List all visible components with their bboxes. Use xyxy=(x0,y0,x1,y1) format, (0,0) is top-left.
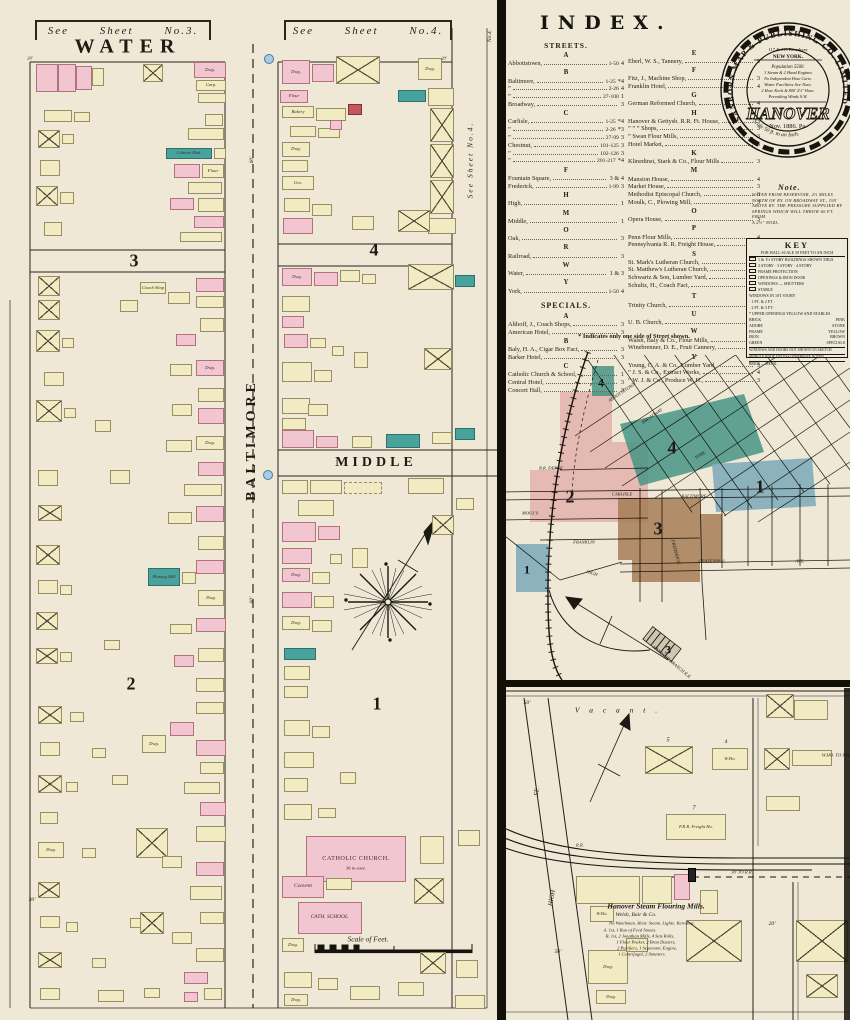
building-label: Dwg. xyxy=(205,366,215,371)
building-dwg: Dwg. xyxy=(282,568,310,582)
index-cell: Young, C. A. & Co., Lumber Yard, xyxy=(628,362,716,370)
building xyxy=(432,515,454,535)
building xyxy=(282,160,308,172)
index-cell xyxy=(553,179,606,180)
building xyxy=(120,300,138,312)
map-label-7: 7 xyxy=(692,805,695,812)
index-cell: Mansion House, xyxy=(628,176,669,184)
index-cell xyxy=(513,89,607,90)
building xyxy=(168,292,190,304)
building xyxy=(282,480,308,494)
index-cell xyxy=(537,105,617,106)
map-label-50: 50' xyxy=(555,949,562,955)
index-cell xyxy=(573,325,616,326)
building xyxy=(314,272,338,286)
building-label: Dwg. xyxy=(205,441,215,446)
building xyxy=(76,66,92,90)
index-cell: 1 xyxy=(621,371,624,379)
index-group-letter: S xyxy=(628,251,760,259)
specials-heading: SPECIALS. xyxy=(508,301,624,311)
map-label-50: 50' xyxy=(524,700,531,706)
building xyxy=(38,775,62,793)
building xyxy=(332,346,344,356)
building xyxy=(38,505,62,521)
building xyxy=(60,192,74,204)
building xyxy=(340,772,356,784)
building xyxy=(136,828,168,858)
building xyxy=(764,748,790,770)
building xyxy=(352,548,368,568)
building xyxy=(340,270,360,282)
index-cell: Catholic Church & School, xyxy=(508,371,577,379)
building xyxy=(282,296,310,312)
building xyxy=(38,300,60,320)
index-row: Opera House,3 xyxy=(628,216,760,224)
index-cell: 201-217 xyxy=(597,158,616,165)
building-cath-school: CATH. SCHOOL. xyxy=(298,902,362,934)
building xyxy=(282,592,312,608)
index-cell: ” W. J. & Co., Produce W. H., xyxy=(628,377,703,385)
building-label: Carp. xyxy=(206,83,217,88)
building xyxy=(455,428,475,440)
building xyxy=(196,278,224,292)
building xyxy=(190,886,222,900)
index-group-letter: O xyxy=(508,227,624,235)
building xyxy=(40,160,60,176)
building-label: CATH. SCHOOL. xyxy=(311,915,350,921)
index-cell xyxy=(533,257,617,258)
building xyxy=(198,198,224,212)
building-w-ho: W.Ho. xyxy=(712,748,748,770)
index-cell: Winebrenner, D. E., Fruit Cannery, xyxy=(628,344,716,352)
building xyxy=(298,500,334,516)
index-cell: 4 xyxy=(757,369,760,377)
building-label: Dwg. xyxy=(205,68,215,73)
index-cell: 4 xyxy=(621,288,624,296)
key-footer-line: SHINGLE ROOF UNLESS OTHERWISE NOTED xyxy=(749,354,845,360)
building xyxy=(283,218,313,234)
index-cell xyxy=(546,383,617,384)
building xyxy=(176,334,196,346)
index-cell: Moulk, C., Plowing Mill, xyxy=(628,199,692,207)
building-dwg: Dwg. xyxy=(284,994,308,1006)
index-cell xyxy=(669,306,753,307)
index-cell: Opera House, xyxy=(628,216,663,224)
building xyxy=(170,198,194,210)
building xyxy=(806,974,838,998)
key-color-name: SPECIALS xyxy=(827,340,845,346)
map-label-1-flour-packer-2-bran-dusters: 1 Flour Packer, 2 Bran Dusters, xyxy=(616,940,675,945)
index-cell: 3 xyxy=(621,134,624,142)
building xyxy=(188,182,222,194)
map-label-36-to-eave: 36 to eave. xyxy=(346,866,366,871)
index-group-letter: O xyxy=(628,208,760,216)
building xyxy=(64,408,76,418)
map-label-5: 5 xyxy=(666,737,669,744)
index-row: Young, C. A. & Co., Lumber Yard,3 xyxy=(628,362,760,370)
index-group-letter: R xyxy=(508,244,624,252)
building xyxy=(290,126,316,137)
index-cell xyxy=(524,292,607,293)
index-group-letter: C xyxy=(508,110,624,118)
index-row: Althoff, J., Coach Shops,3 xyxy=(508,321,624,329)
building xyxy=(398,982,424,996)
index-cell: 3 xyxy=(621,387,624,395)
index-group-letter: M xyxy=(628,167,760,175)
index-cell: 102-126 xyxy=(600,151,619,158)
stamp-city-name: HANOVER xyxy=(745,104,829,123)
building xyxy=(170,722,194,736)
index-cell: 3 & 4 xyxy=(610,175,624,183)
map-label-2: 2 xyxy=(127,674,136,695)
index-cell xyxy=(705,381,753,382)
building xyxy=(766,796,800,811)
index-row: Broadway,3 xyxy=(508,101,624,109)
index-group-letter: M xyxy=(508,210,624,218)
index-cell: 3 xyxy=(621,253,624,261)
index-cell: Baltimore, xyxy=(508,78,535,86)
building xyxy=(354,352,368,368)
index-cell xyxy=(513,97,601,98)
building-dwg: Dwg. xyxy=(38,842,64,858)
building xyxy=(38,276,60,296)
building xyxy=(455,995,485,1009)
building xyxy=(36,648,58,664)
index-cell: ” J. S. & Co., Extract Works, xyxy=(628,369,701,377)
building xyxy=(144,988,160,998)
index-cell xyxy=(665,220,753,221)
key-title: KEY xyxy=(749,240,845,250)
map-label-60: 60' xyxy=(249,597,255,604)
index-cell: Klinedinst, Stark & Co., Flour Mills xyxy=(628,158,719,166)
building-label: Dwg. xyxy=(291,147,301,152)
building-label: Dwg. xyxy=(291,621,301,626)
index-cell: Penn Flour Mills, xyxy=(628,234,672,242)
map-label-30-to-r-r: 30' TO R.R. xyxy=(731,870,753,875)
index-row: Middle,1 xyxy=(508,218,624,226)
building-label: Bakery xyxy=(291,110,304,115)
index-row: ”201-217*4 xyxy=(508,157,624,165)
index-cell xyxy=(665,323,753,324)
index-row: Barker Hotel,3 xyxy=(508,354,624,362)
index-row: Central Hotel,3 xyxy=(508,379,624,387)
sanborn-map-page: See Sheet No.3. See Sheet No.4. Dwg.Carp… xyxy=(0,0,850,1020)
index-cell: Carlisle, xyxy=(508,118,529,126)
building xyxy=(44,222,62,236)
building xyxy=(214,148,226,159)
map-label-ave: AVE. xyxy=(795,559,804,564)
map-label-r-r-depot: R.R. DEPOT xyxy=(539,466,563,471)
building xyxy=(92,958,106,968)
index-cell: 101-125 xyxy=(600,143,619,150)
index-row: ”27-1001 xyxy=(508,93,624,101)
index-cell: Chestnut, xyxy=(508,142,532,150)
building-label: Dwg. xyxy=(46,848,56,853)
index-cell xyxy=(544,391,617,392)
index-row: Railroad,3 xyxy=(508,253,624,261)
building xyxy=(310,480,342,494)
building xyxy=(140,912,164,934)
building xyxy=(200,912,224,924)
sanborn-publisher-stamp: SANBORN MAP & PUBLISHING CO. LIMITED Sca… xyxy=(718,20,850,160)
building xyxy=(330,554,342,564)
index-cell: Abbottstown, xyxy=(508,60,542,68)
index-group-letter: C xyxy=(508,363,624,371)
index-cell: Oak, xyxy=(508,235,520,243)
building xyxy=(456,960,478,978)
water-note: Note. WATER FROM RESERVOIR, 2½ MILESNORT… xyxy=(752,183,848,225)
building xyxy=(188,128,224,140)
building-flour: Flour xyxy=(280,90,308,103)
index-cell: St. Mark's Lutheran Church, xyxy=(628,259,700,267)
index-cell: 1 xyxy=(621,218,624,226)
building xyxy=(398,90,426,102)
streets-heading: STREETS. xyxy=(508,41,624,50)
building xyxy=(168,512,192,524)
stamp-line: 2 Hose Reels & 800' 2½" Hose. xyxy=(761,88,814,93)
building xyxy=(312,204,332,216)
index-cell: ” xyxy=(508,85,511,93)
building xyxy=(196,506,224,522)
building xyxy=(362,274,376,284)
index-row: ”102-1263 xyxy=(508,150,624,158)
index-row: St. Mark's Lutheran Church,2 xyxy=(628,259,760,267)
index-cell: ” xyxy=(508,93,511,101)
building xyxy=(330,120,342,130)
building xyxy=(576,876,640,904)
building xyxy=(408,478,444,494)
building xyxy=(352,216,374,230)
index-group-letter: Y xyxy=(508,279,624,287)
building xyxy=(263,470,273,480)
index-cell: 3 xyxy=(621,354,624,362)
index-cell: Fitz, J., Machine Shop, xyxy=(628,75,686,83)
index-row: Schwartz & Son, Lumber Yard,3 xyxy=(628,274,760,282)
index-cell: ” xyxy=(508,126,511,134)
building xyxy=(198,648,224,662)
building xyxy=(196,678,224,692)
index-group-letter: H xyxy=(508,192,624,200)
map-label-no-watchman-heat-steam-lights-kerosene: No Watchman. Heat: Steam. Lights: Kerose… xyxy=(609,921,695,926)
building xyxy=(428,88,454,106)
building xyxy=(284,804,312,820)
building-convent: Convent xyxy=(282,876,324,898)
stamp-date: Nov. 1886. Pa. xyxy=(769,123,807,130)
index-cell: Middle, xyxy=(508,218,528,226)
index-cell: *4 xyxy=(618,78,624,86)
building xyxy=(282,418,306,430)
building xyxy=(284,720,310,736)
index-row: ”2-264 xyxy=(508,85,624,93)
horizontal-fold-bar xyxy=(497,680,850,687)
index-row: Baltimore,1-25*4 xyxy=(508,78,624,86)
note-line: SPRINGS WHICH WILL THROW 60 FT. FROM xyxy=(752,209,848,220)
index-cell xyxy=(581,350,617,351)
index-cell: Hotel Market, xyxy=(628,141,663,149)
building xyxy=(196,296,224,308)
index-cell xyxy=(671,180,753,181)
index-cell: Concert Hall, xyxy=(508,387,542,395)
building xyxy=(312,572,330,584)
index-cell: High, xyxy=(508,200,522,208)
building xyxy=(172,932,192,944)
index-group-letter: A xyxy=(508,313,624,321)
building-label: Dwg. xyxy=(606,995,616,1000)
stamp-line: Water Facilities See Note. xyxy=(764,82,812,87)
building xyxy=(200,762,224,774)
index-cell: ” xyxy=(508,150,511,158)
building xyxy=(184,484,222,496)
building xyxy=(688,868,696,882)
index-cell: 1-50 xyxy=(609,289,619,296)
building xyxy=(318,808,336,818)
index-cell: 1 xyxy=(621,93,624,101)
map-label-scale-of-feet: Scale of Feet. xyxy=(347,935,388,944)
building-dwg: Dwg. xyxy=(142,735,166,753)
building-label: Dwg. xyxy=(149,742,159,747)
building xyxy=(348,104,362,115)
building xyxy=(432,432,452,444)
index-cell: ” Swan Flour Mills, xyxy=(628,133,678,141)
building xyxy=(645,746,693,774)
building xyxy=(184,992,198,1002)
map-label-franklin: FRANKLIN xyxy=(573,540,595,545)
building-label: Coach Shop xyxy=(142,286,164,291)
index-row: York,1-504 xyxy=(508,288,624,296)
building xyxy=(40,916,60,928)
map-label-no-4: No.4. xyxy=(487,30,493,42)
building xyxy=(182,572,196,584)
index-row: Chestnut,101-1253 xyxy=(508,142,624,150)
building xyxy=(344,482,382,494)
index-cell: 1-99 xyxy=(609,184,619,191)
building xyxy=(194,216,224,228)
index-row: Catholic Church & School,1 xyxy=(508,371,624,379)
index-cell: 4 xyxy=(621,85,624,93)
building-label: Dwg. xyxy=(206,596,216,601)
building xyxy=(766,694,794,718)
building xyxy=(458,830,480,846)
index-group-letter: P xyxy=(628,225,760,233)
index-cell: 3 xyxy=(757,377,760,385)
key-color-name: GREEN xyxy=(749,340,762,346)
building xyxy=(414,878,444,904)
building xyxy=(312,64,334,82)
index-cell: 2-26 xyxy=(609,86,619,93)
index-cell xyxy=(530,222,617,223)
see-sheet-4-banner: See Sheet No.4. xyxy=(284,20,452,40)
building xyxy=(318,978,338,990)
index-cell: Frederick, xyxy=(508,183,534,191)
index-row: Carlisle,1-25*4 xyxy=(508,118,624,126)
building-label: Convent xyxy=(294,884,312,890)
index-row: Fountain Square,3 & 4 xyxy=(508,175,624,183)
building xyxy=(170,364,192,376)
map-label-20: 20' xyxy=(769,921,776,927)
building xyxy=(92,68,104,86)
building xyxy=(174,655,194,667)
index-row: Oak,3 xyxy=(508,235,624,243)
building xyxy=(352,436,372,448)
building xyxy=(196,826,226,842)
index-cell: 4 xyxy=(621,60,624,68)
index-cell xyxy=(524,204,617,205)
index-row: ” W. J. & Co., Produce W. H.,3 xyxy=(628,377,760,385)
index-cell: Trinity Church, xyxy=(628,302,667,310)
building xyxy=(196,560,224,574)
building-cabinet-mak: Cabinet Mak. xyxy=(166,148,212,159)
key-symbol xyxy=(749,257,756,261)
index-row: St. Matthew's Lutheran Church,2 xyxy=(628,266,760,274)
index-group-letter: A xyxy=(508,52,624,60)
building xyxy=(264,54,274,64)
stamp-line: Prevailing Winds S.W. xyxy=(768,94,808,99)
map-label-see-sheet-no-4: See Sheet No.4. xyxy=(466,122,475,199)
building xyxy=(196,740,226,756)
building-label: Dwg. xyxy=(292,275,302,280)
map-label-20: 20' xyxy=(27,56,33,61)
index-group-letter: Y xyxy=(628,354,760,362)
index-cell: 27-99 xyxy=(606,135,619,142)
building xyxy=(312,726,330,738)
building xyxy=(184,782,220,794)
index-cell: 3 xyxy=(621,101,624,109)
building xyxy=(95,420,111,432)
index-cell: *4 xyxy=(618,157,624,165)
index-cell: Water, xyxy=(508,270,524,278)
building xyxy=(686,920,742,962)
building xyxy=(198,388,224,402)
building xyxy=(60,585,72,595)
building xyxy=(196,618,226,632)
building xyxy=(184,972,208,984)
index-group-letter: W xyxy=(508,262,624,270)
building xyxy=(58,64,76,92)
index-row: Mansion House,4 xyxy=(628,176,760,184)
index-row: ”27-993 xyxy=(508,134,624,142)
building-dwg: Dwg. xyxy=(196,436,224,450)
building-dwg: Dwg. xyxy=(596,990,626,1004)
building-label: Dwg. xyxy=(291,70,301,75)
index-cell xyxy=(513,130,604,131)
building-label: Dwg. xyxy=(603,965,613,970)
map-label-2-purifiers-1-separator-engine: 2 Purifiers, 1 Separator, Engine, xyxy=(617,946,677,951)
building-carp: Carp. xyxy=(196,80,226,91)
building xyxy=(316,436,338,448)
index-cell xyxy=(513,154,598,155)
building xyxy=(174,164,200,178)
building xyxy=(284,198,310,212)
index-row: Methodist Episcopal Church,3 xyxy=(628,191,760,199)
building xyxy=(284,686,308,698)
key-subtitle: FOR WALL SCALE 50 FEET TO AN INCH xyxy=(749,250,845,257)
building-dwg: Dwg. xyxy=(282,142,310,157)
building xyxy=(430,108,454,142)
index-row: U. B. Church,3 xyxy=(628,319,760,327)
index-cell: Baly, H. A., Cigar Box Fact, xyxy=(508,346,579,354)
map-label-4: 4 xyxy=(370,240,379,261)
building-p-r-r-freight-ho: P.R.R. Freight Ho. xyxy=(666,814,726,840)
building xyxy=(38,580,58,594)
index-cell xyxy=(667,187,752,188)
building xyxy=(36,330,60,352)
building xyxy=(282,548,312,564)
index-cell: 1-25 xyxy=(605,79,615,86)
index-cell: Althoff, J., Coach Shops, xyxy=(508,321,571,329)
building-label: Cabinet Mak. xyxy=(176,151,201,156)
index-cell: 3 xyxy=(621,235,624,243)
key-footer-line: BRICK — METAL xyxy=(749,361,845,367)
